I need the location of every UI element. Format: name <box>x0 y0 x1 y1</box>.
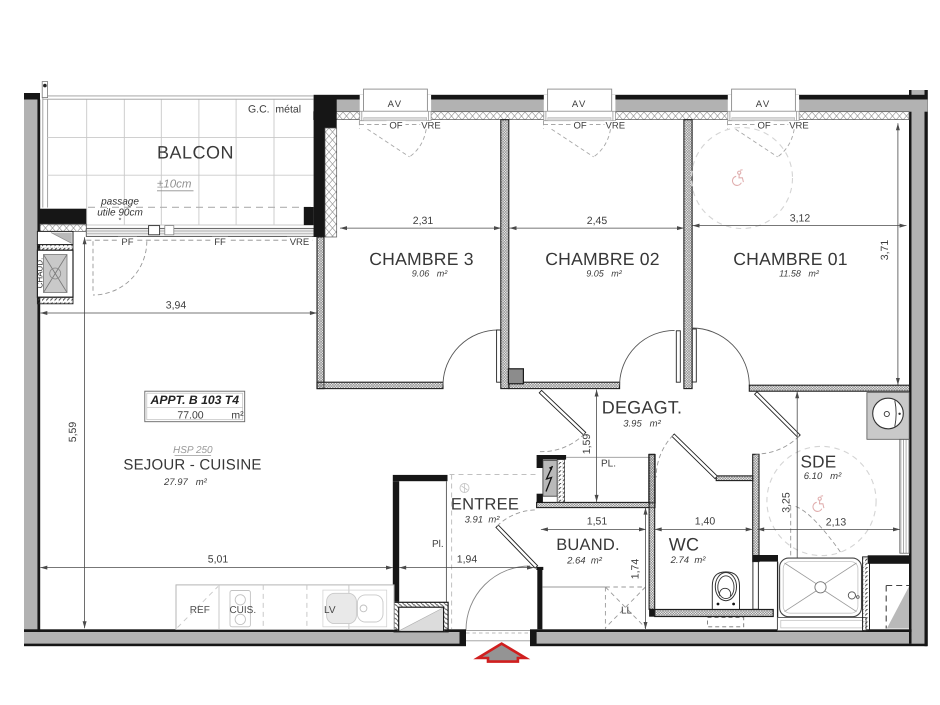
svg-text:1,51: 1,51 <box>587 516 608 528</box>
svg-text:ENTREE: ENTREE <box>451 496 519 514</box>
svg-text:CHAMBRE 01: CHAMBRE 01 <box>733 249 847 269</box>
svg-text:5,59: 5,59 <box>67 422 79 443</box>
svg-text:OF: OF <box>389 121 402 132</box>
svg-text:±10cm: ±10cm <box>157 179 192 191</box>
svg-text:VRE: VRE <box>421 121 441 132</box>
svg-text:PL.: PL. <box>601 459 616 470</box>
svg-text:VRE: VRE <box>290 237 310 248</box>
svg-text:SDE: SDE <box>801 452 837 472</box>
svg-text:HSP 250: HSP 250 <box>173 445 213 456</box>
svg-text:PF: PF <box>121 237 133 248</box>
svg-text:27.97 m²: 27.97 m² <box>163 477 208 488</box>
svg-text:2.74 m²: 2.74 m² <box>670 555 707 566</box>
svg-text:passage: passage <box>100 197 139 208</box>
svg-text:1,59: 1,59 <box>581 434 593 455</box>
svg-text:CHAMBRE 02: CHAMBRE 02 <box>545 249 659 269</box>
svg-text:3,25: 3,25 <box>781 492 793 513</box>
svg-text:1,74: 1,74 <box>630 559 642 580</box>
svg-text:6.10 m²: 6.10 m² <box>804 471 842 482</box>
svg-text:3.95 m²: 3.95 m² <box>623 419 661 430</box>
svg-text:G.C. métal: G.C. métal <box>248 104 301 116</box>
svg-text:APPT. B 103 T4: APPT. B 103 T4 <box>150 393 240 407</box>
svg-text:2,13: 2,13 <box>826 517 847 529</box>
svg-text:VRE: VRE <box>789 121 809 132</box>
svg-text:AV: AV <box>756 99 771 110</box>
svg-text:3,12: 3,12 <box>790 213 811 225</box>
svg-text:CHAMBRE 3: CHAMBRE 3 <box>369 249 473 269</box>
svg-text:1,40: 1,40 <box>695 516 716 528</box>
svg-text:BUAND.: BUAND. <box>556 536 620 554</box>
svg-text:m²: m² <box>231 410 244 422</box>
svg-text:OF: OF <box>573 121 586 132</box>
svg-text:LV: LV <box>324 605 336 616</box>
svg-text:11.58 m²: 11.58 m² <box>779 269 820 279</box>
svg-text:5,01: 5,01 <box>208 554 229 566</box>
svg-text:OF: OF <box>757 121 770 132</box>
svg-text:1,94: 1,94 <box>457 554 478 566</box>
svg-text:FF: FF <box>214 237 226 248</box>
svg-text:CHAUD.: CHAUD. <box>36 258 45 289</box>
svg-text:AV: AV <box>572 99 587 110</box>
svg-text:3.91 m²: 3.91 m² <box>465 515 501 526</box>
svg-text:9.06 m²: 9.06 m² <box>412 269 449 279</box>
svg-text:REF: REF <box>190 605 210 616</box>
svg-text:Pl.: Pl. <box>432 539 444 550</box>
svg-text:LL: LL <box>621 606 633 617</box>
svg-text:3,71: 3,71 <box>879 240 891 261</box>
svg-text:77.00: 77.00 <box>177 410 203 422</box>
svg-text:3,94: 3,94 <box>166 300 187 312</box>
svg-text:DEGAGT.: DEGAGT. <box>602 398 682 418</box>
svg-text:WC: WC <box>669 535 699 555</box>
svg-text:9.05 m²: 9.05 m² <box>586 269 623 279</box>
svg-text:SEJOUR - CUISINE: SEJOUR - CUISINE <box>123 457 261 474</box>
svg-text:2,45: 2,45 <box>587 215 608 227</box>
svg-text:2,31: 2,31 <box>413 215 434 227</box>
svg-text:BALCON: BALCON <box>157 143 234 163</box>
svg-text:AV: AV <box>388 99 403 110</box>
svg-text:*: * <box>119 218 122 225</box>
svg-text:2.64 m²: 2.64 m² <box>566 556 603 567</box>
svg-text:VRE: VRE <box>606 121 626 132</box>
svg-text:CUIS.: CUIS. <box>229 605 256 616</box>
